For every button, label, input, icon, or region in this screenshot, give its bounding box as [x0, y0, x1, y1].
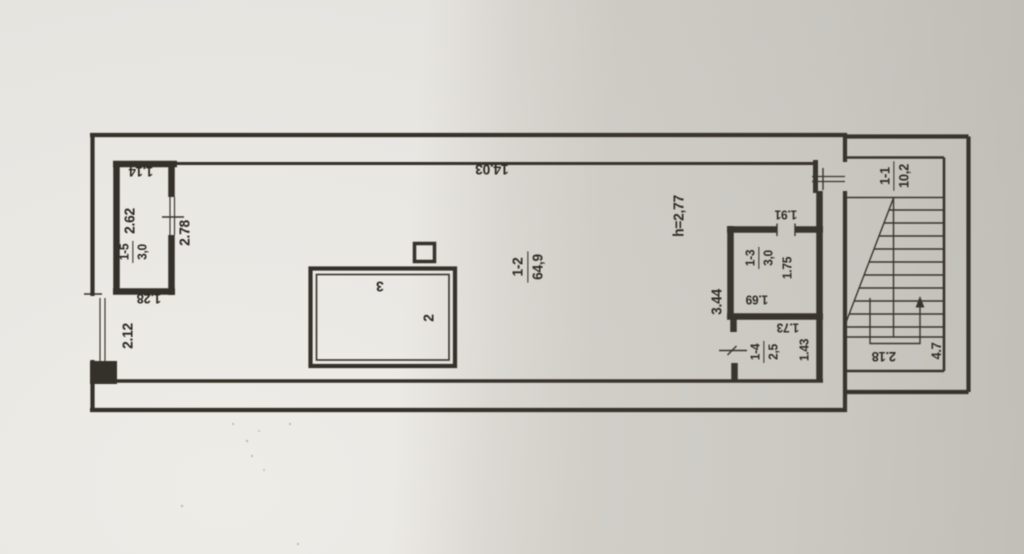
- room-number: 1-4: [748, 344, 761, 360]
- room-label-1-3: 1-3 3,0: [743, 250, 774, 266]
- walk-direction-arrow-icon: [916, 296, 925, 308]
- room-area: 2,5: [767, 344, 780, 360]
- door-opening-lines: [170, 177, 845, 236]
- dim-overall-length: 14.03: [475, 161, 508, 178]
- item-3-label: 3: [376, 278, 383, 295]
- stair-steps: [846, 210, 944, 337]
- window-symbol: [100, 298, 105, 361]
- fraction-bar: [893, 161, 895, 190]
- room-label-1-5: 1-5 3,0: [117, 244, 148, 260]
- fraction-bar: [527, 251, 529, 282]
- dim-ceiling-height: h=2,77: [671, 195, 688, 237]
- fraction-bar: [132, 241, 134, 263]
- dim-1-73: 1.73: [777, 321, 799, 336]
- room-area: 3,0: [762, 250, 775, 266]
- column-marker: [415, 244, 435, 262]
- floor-plan-photo: 14.03 h=2,77 1-2 64,9 3 2 1.14 2.62 1-5 …: [0, 0, 1024, 554]
- room-number: 1-3: [743, 250, 756, 266]
- dim-1-91: 1.91: [775, 208, 797, 223]
- room-number: 1-5: [117, 244, 130, 260]
- dim-3-44: 3.44: [709, 289, 726, 315]
- floor-plan-drawing: 14.03 h=2,77 1-2 64,9 3 2 1.14 2.62 1-5 …: [0, 0, 1024, 554]
- fraction-bar: [763, 341, 765, 363]
- dim-2-62: 2.62: [122, 208, 139, 234]
- fraction-bar: [758, 247, 760, 269]
- dim-1-75: 1.75: [780, 257, 795, 279]
- room-label-1-1: 1-1 10,2: [877, 164, 910, 188]
- stair-landing-line: [846, 197, 944, 337]
- dim-1-69: 1.69: [746, 293, 768, 308]
- room-number: 1-1: [877, 167, 891, 185]
- room-area: 64,9: [531, 254, 546, 280]
- dim-1-43: 1.43: [797, 339, 812, 361]
- dim-1-28: 1.28: [137, 291, 161, 307]
- room-area: 3,0: [136, 244, 149, 260]
- room-number: 1-2: [510, 257, 525, 276]
- dim-1-14: 1.14: [129, 164, 153, 180]
- partition-walls: [113, 160, 823, 382]
- dim-2-18: 2.18: [872, 349, 896, 365]
- room-label-1-4: 1-4 2,5: [748, 344, 779, 360]
- room-label-1-2: 1-2 64,9: [510, 254, 545, 280]
- paper-specks: [181, 423, 299, 545]
- dim-4-7: 4.7: [928, 342, 944, 359]
- dim-2-12: 2.12: [120, 323, 137, 349]
- room-area: 10,2: [897, 164, 911, 188]
- item-2-label: 2: [421, 314, 438, 321]
- dim-2-78: 2.78: [177, 220, 194, 246]
- wall-corner-fill: [90, 361, 117, 384]
